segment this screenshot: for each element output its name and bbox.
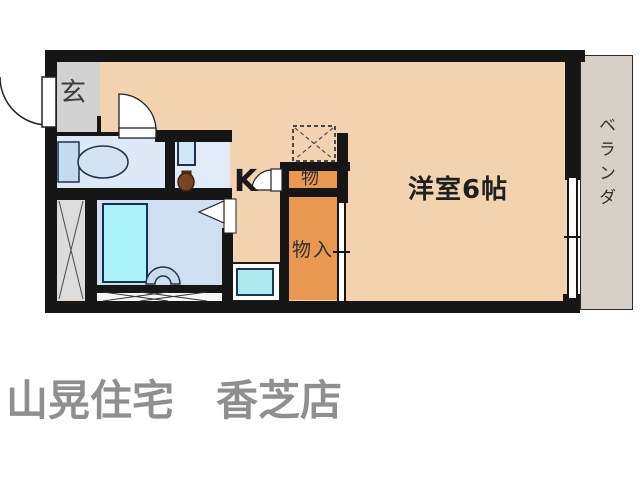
floorplan-canvas: 玄 K 物 物入 洋室6帖 ベランダ 山晃住宅 香芝店 (0, 0, 640, 480)
kitchen-label: K (234, 167, 257, 197)
balcony-label: ベランダ (596, 116, 613, 212)
entrance-label: 玄 (60, 80, 86, 106)
hall-door-leaf-icon (119, 128, 156, 138)
footer-brand-text: 山晃住宅 香芝店 (6, 380, 342, 422)
toilet-icon (58, 142, 128, 182)
laundry-hatch-icon (103, 292, 207, 301)
closet-label: 物入 (289, 241, 337, 260)
western-room-label: 洋室6帖 (408, 177, 508, 203)
upper-storage-label: 物 (301, 170, 319, 188)
entrance-door-leaf-icon (42, 77, 56, 127)
bath-faucet-icon (146, 267, 180, 284)
bath-door-wedge-icon (199, 201, 224, 223)
pipe-space-cross-icon (59, 201, 83, 299)
washroom-fixture-icon (178, 171, 194, 191)
bath-door-panel-icon (224, 199, 236, 233)
entrance-door-arc-icon (0, 77, 48, 125)
storage-door-leaf-icon (271, 169, 282, 191)
hall-door-arc-icon (119, 94, 156, 131)
refrigerator-space-icon (293, 126, 335, 161)
